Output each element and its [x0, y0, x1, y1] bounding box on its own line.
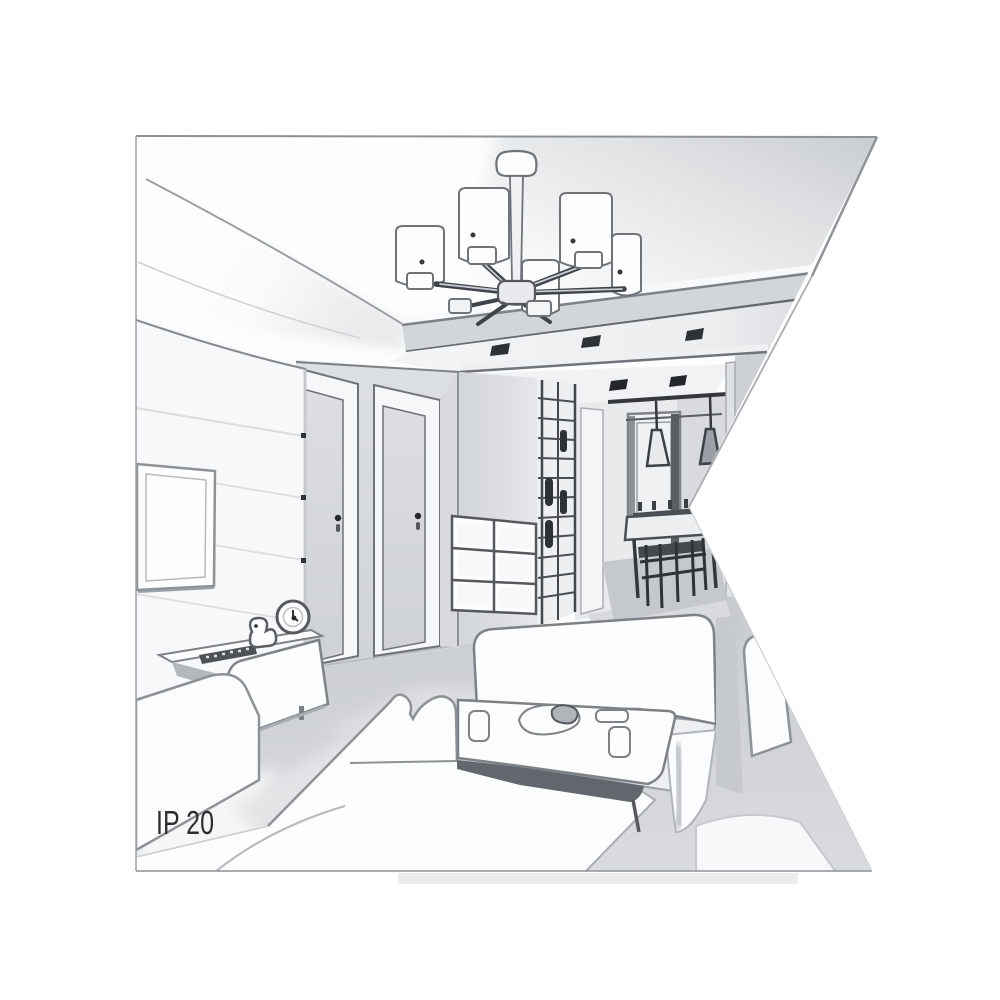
svg-text:IP 20: IP 20 — [156, 804, 214, 841]
